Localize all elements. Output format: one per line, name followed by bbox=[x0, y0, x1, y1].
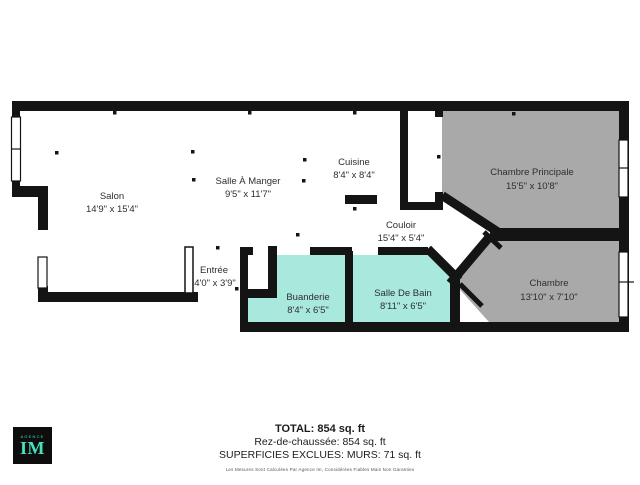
wall-closet-top-stub bbox=[240, 247, 253, 255]
room-dims-buanderie: 8'4" x 6'5" bbox=[287, 305, 329, 316]
room-dims-salle-de-bain: 8'11" x 6'5" bbox=[380, 301, 426, 312]
room-dims-salon: 14'9" x 15'4" bbox=[86, 204, 138, 215]
room-fills bbox=[248, 111, 619, 322]
window-chambre bbox=[619, 252, 628, 317]
wall-bottom bbox=[240, 322, 629, 332]
wall-bottom-left bbox=[38, 292, 198, 302]
disclaimer-text: Les Mesures Sont Calculées Par Agence Im… bbox=[219, 467, 421, 472]
total-area-text: TOTAL: 854 sq. ft bbox=[219, 423, 421, 436]
door-front-leaf bbox=[185, 247, 193, 293]
window-left-lower bbox=[38, 257, 47, 288]
room-dims-chambre: 13'10" x 7'10" bbox=[520, 292, 577, 303]
room-dims-salle-a-manger: 9'5" x 11'7" bbox=[225, 189, 271, 200]
agency-logo: AGENCE IM bbox=[13, 427, 52, 464]
room-dims-entree: 4'0" x 3'9" bbox=[194, 278, 236, 289]
room-label-buanderie: Buanderie bbox=[286, 292, 329, 303]
wall-couloir-stub bbox=[345, 195, 377, 204]
excluded-area-text: SUPERFICIES EXCLUES: MURS: 71 sq. ft bbox=[219, 449, 421, 462]
room-label-cuisine: Cuisine bbox=[338, 157, 370, 168]
wall-top bbox=[12, 101, 629, 111]
wall-sdb-top bbox=[378, 247, 428, 255]
wall-bedrooms-divider bbox=[490, 228, 629, 241]
floorplan-page: Salon 14'9" x 15'4" Salle À Manger 9'5" … bbox=[0, 0, 640, 480]
room-label-couloir: Couloir bbox=[386, 220, 416, 231]
room-label-salon: Salon bbox=[100, 191, 124, 202]
floorplan-drawing: Salon 14'9" x 15'4" Salle À Manger 9'5" … bbox=[0, 0, 640, 480]
room-label-salle-a-manger: Salle À Manger bbox=[216, 176, 281, 187]
wall-cuisine-bottom bbox=[400, 202, 443, 210]
room-label-chambre: Chambre bbox=[529, 278, 568, 289]
room-dims-couloir: 15'4" x 5'4" bbox=[378, 233, 425, 244]
room-dims-chambre-principale: 15'5" x 10'8" bbox=[506, 181, 558, 192]
room-label-chambre-principale: Chambre Principale bbox=[490, 167, 573, 178]
wall-chp-closet-stub-top bbox=[435, 108, 443, 117]
room-label-salle-de-bain: Salle De Bain bbox=[374, 288, 432, 299]
summary-block: TOTAL: 854 sq. ft Rez-de-chaussée: 854 s… bbox=[219, 423, 421, 472]
wall-closet-bottom bbox=[248, 289, 277, 298]
floor-area-text: Rez-de-chaussée: 854 sq. ft bbox=[219, 436, 421, 449]
room-label-entree: Entrée bbox=[200, 265, 228, 276]
wall-buanderie-sdb-divider bbox=[345, 251, 353, 322]
wall-left-jog bbox=[12, 186, 48, 197]
agency-logo-monogram: IM bbox=[20, 439, 45, 457]
room-dims-cuisine: 8'4" x 8'4" bbox=[333, 170, 375, 181]
wall-entry-right bbox=[240, 247, 248, 332]
wall-left-lower bbox=[38, 197, 48, 230]
wall-cuisine-right bbox=[400, 111, 408, 202]
